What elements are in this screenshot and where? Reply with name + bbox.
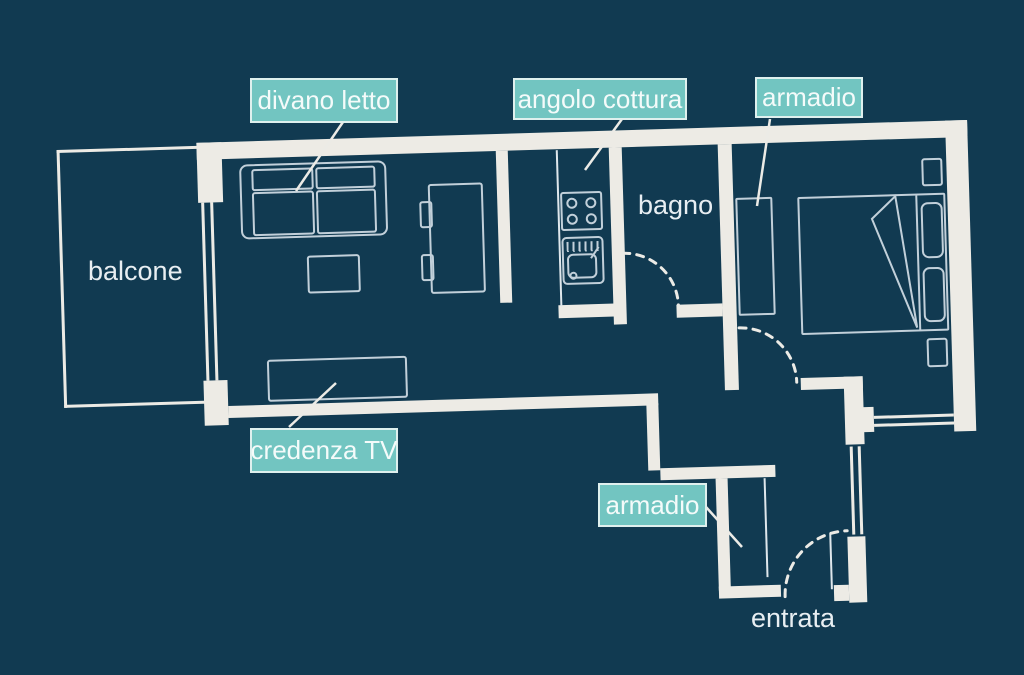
leader-angolo-cottura — [585, 119, 622, 170]
leader-armadio-bedroom — [757, 119, 770, 206]
label-divano-letto: divano letto — [250, 78, 398, 123]
room-label-balcone: balcone — [88, 256, 183, 287]
label-angolo-cottura: angolo cottura — [513, 78, 687, 120]
label-credenza-tv: credenza TV — [250, 428, 398, 473]
label-armadio-bedroom: armadio — [755, 77, 863, 118]
leader-lines — [0, 0, 1024, 675]
label-armadio-hall: armadio — [598, 483, 707, 527]
room-label-bagno: bagno — [638, 190, 713, 221]
room-label-entrata: entrata — [751, 603, 835, 634]
floor-plan: divano letto angolo cottura armadio cred… — [0, 0, 1024, 675]
leader-divano-letto — [296, 122, 343, 191]
annotation-layer: divano letto angolo cottura armadio cred… — [0, 0, 1024, 675]
leader-armadio-hall — [706, 507, 742, 547]
leader-credenza-tv — [289, 383, 336, 427]
